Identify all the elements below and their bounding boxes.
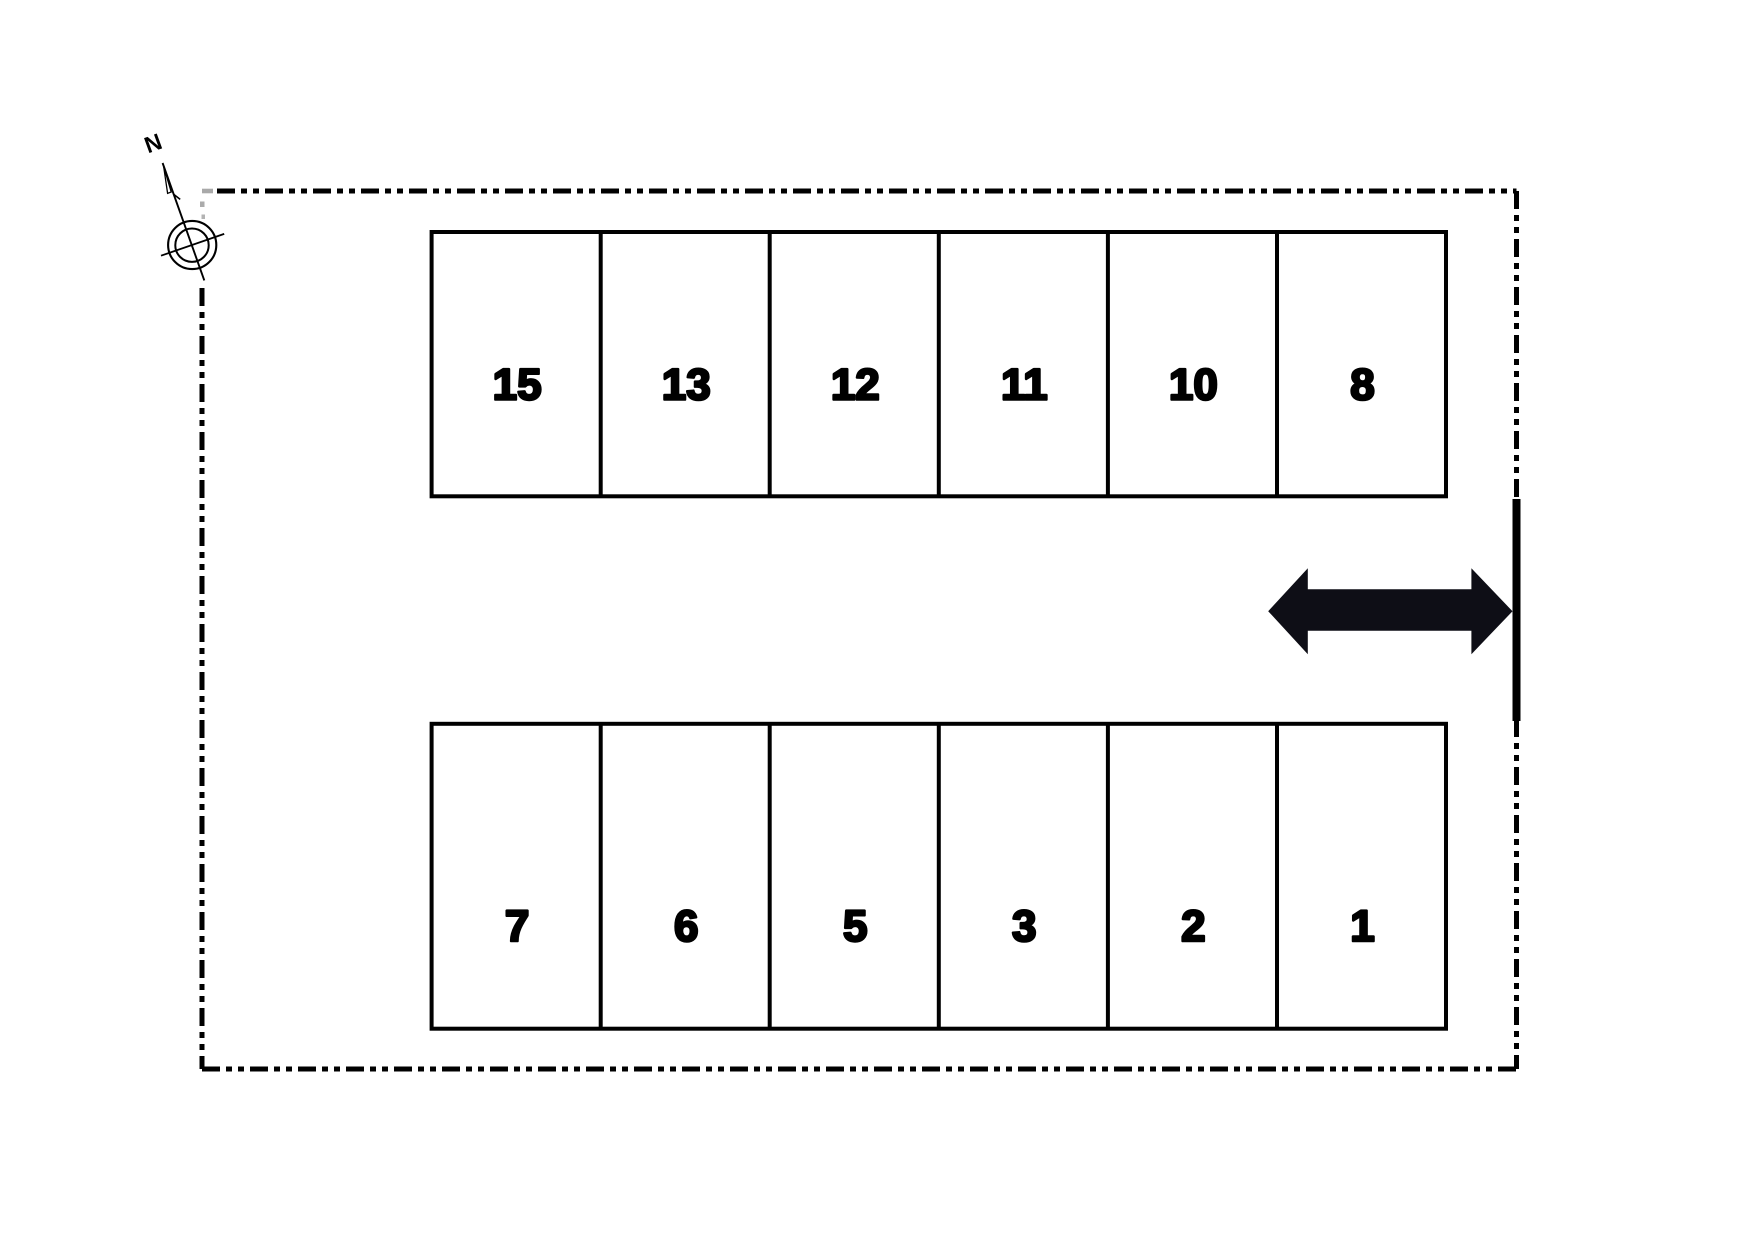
svg-text:7: 7 <box>505 902 529 951</box>
svg-text:3: 3 <box>1012 902 1036 951</box>
svg-text:11: 11 <box>1001 361 1048 410</box>
svg-text:1: 1 <box>1350 902 1374 951</box>
svg-text:8: 8 <box>1350 361 1374 410</box>
svg-text:13: 13 <box>662 361 711 410</box>
svg-text:10: 10 <box>1169 361 1218 410</box>
svg-text:15: 15 <box>493 361 542 410</box>
svg-text:12: 12 <box>831 361 880 410</box>
svg-text:5: 5 <box>843 902 867 951</box>
svg-text:6: 6 <box>674 902 698 951</box>
svg-text:2: 2 <box>1181 902 1205 951</box>
